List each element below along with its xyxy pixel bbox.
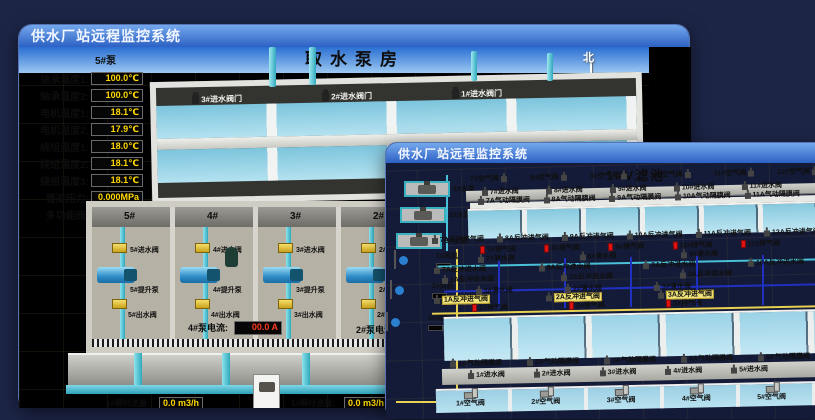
panel-row-value: 18.1℃: [91, 106, 143, 119]
inlet-valve-label: 1#进水阀: [476, 371, 505, 379]
inlet-valve[interactable]: 7#进水阀: [482, 188, 519, 196]
exhaust-valve-label: 2#排气阀: [576, 301, 605, 309]
clean-water-valve[interactable]: 9#清水阀: [681, 251, 718, 259]
inlet-valve-icon[interactable]: [361, 243, 376, 253]
alarm-valve-icon: [666, 299, 671, 307]
pump-icon[interactable]: [263, 267, 301, 283]
exhaust-valve[interactable]: 1#排气阀: [472, 303, 508, 312]
valve-icon: [565, 286, 571, 292]
backwash-water-valve[interactable]: 1A反冲进水阀: [442, 276, 494, 284]
inlet-valve[interactable]: 5#进水阀: [731, 366, 768, 374]
diaphragm-valve[interactable]: 2A气动隔膜阀: [527, 358, 579, 366]
valve-icon: [696, 231, 702, 237]
air-valve[interactable]: 7#空气阀: [470, 175, 507, 183]
exhaust-valve[interactable]: 10#排气阀: [672, 241, 712, 250]
inlet-valve-label: 3#进水阀: [296, 247, 325, 254]
intake-valve[interactable]: 1#进水阀门: [452, 89, 502, 99]
diaphragm-valve-label: 1A气动隔膜阀: [458, 360, 502, 368]
panel-row-label: 绕组温度1:: [29, 139, 89, 154]
inlet-valve-label: 3#进水阀: [608, 369, 637, 377]
panel-row-value: 18.0℃: [91, 140, 143, 153]
flow-readout-label: 1#瞬时流量:: [291, 400, 335, 408]
bay-number: 2#: [373, 212, 384, 222]
alarm-valve-icon: [472, 304, 477, 312]
exhaust-valve[interactable]: 2#排气阀: [569, 301, 605, 310]
backwash-air-valve-label: 11A反冲进气阀: [703, 230, 751, 238]
operator-figure: [225, 247, 238, 267]
valve-icon: [675, 194, 681, 200]
pump5-panel-title: 5#泵: [95, 57, 116, 67]
panel-row-label: 绕组温度2:: [29, 156, 89, 171]
air-valve-label: 10#空气阀: [650, 171, 683, 179]
inlet-valve[interactable]: 8#进水阀: [546, 187, 583, 195]
flow-readout-label: 1#瞬时流量:: [106, 400, 150, 408]
app-title: 供水厂站远程监控系统: [31, 26, 181, 46]
inlet-valve-label: 5#进水阀: [130, 247, 159, 254]
pump-icon[interactable]: [97, 267, 135, 283]
blower-label: 2#风机: [432, 283, 454, 290]
pipe-pillar: [547, 53, 553, 81]
air-valve[interactable]: 12#空气阀: [777, 168, 815, 176]
backwash-air-valve-label: 8A反冲进气阀: [505, 234, 549, 242]
bay-number: 3#: [290, 212, 301, 222]
air-valve-label: 4#空气阀: [682, 395, 711, 403]
backwash-water-valve[interactable]: 8A反冲进水阀: [539, 263, 591, 271]
backwash-air-valve-label: 12A反冲进气阀: [772, 228, 815, 236]
valve-icon: [497, 236, 503, 242]
diaphragm-valve[interactable]: 7A气动隔膜阀: [478, 197, 530, 205]
diaphragm-valve[interactable]: 1A气动隔膜阀: [450, 360, 502, 368]
alarm-valve-icon: [741, 240, 746, 248]
filter-pool-scene: 1#V滤池 1#水泵 2#水泵 3#水泵: [386, 163, 815, 419]
filter-pool-window: 供水厂站远程监控系统 1#V滤池 1#水泵 2#水泵 3#水泵: [385, 142, 815, 418]
diaphragm-valve[interactable]: 4A气动隔膜阀: [681, 355, 733, 363]
panel-row: 绕组温度2: 18.1℃: [29, 156, 143, 171]
backwash-water-valve-label: 8A反冲进水阀: [547, 263, 591, 271]
blower-label: 1#风机: [436, 253, 458, 260]
valve-icon: [527, 360, 533, 366]
titlebar[interactable]: 供水厂站远程监控系统: [19, 25, 689, 47]
valve-icon: [482, 189, 488, 195]
backwash-water-valve-label: 1A反冲进水阀: [450, 276, 494, 284]
vertical-pipe: [222, 353, 230, 387]
backwash-air-valve-label: 10A反冲进气阀: [635, 231, 683, 239]
valve-icon: [621, 173, 627, 179]
inlet-valve-label: 7#进水阀: [490, 188, 519, 196]
air-valve-label: 1#空气阀: [456, 400, 485, 408]
blower-icon: [386, 312, 388, 331]
valve-icon: [322, 92, 329, 101]
inlet-valve-label: 8#进水阀: [554, 187, 583, 195]
backwash-water-valve-label: 3A反冲进水阀: [688, 270, 732, 278]
building-front: [68, 353, 430, 385]
backwash-water-valve-label: 7A反冲进水阀: [442, 266, 486, 274]
air-valve[interactable]: 2#空气阀: [531, 390, 560, 406]
valve-icon: [476, 288, 482, 294]
valve-icon: [544, 197, 550, 203]
diaphragm-valve-label: 9A气动隔膜阀: [617, 194, 661, 202]
exhaust-valve-label: 1#排气阀: [479, 304, 508, 312]
valve-icon: [758, 355, 764, 361]
panel-row: 绕组温度3: 18.1℃: [29, 173, 143, 188]
valve-icon: [685, 171, 691, 177]
air-valve-label: 2#空气阀: [531, 398, 560, 406]
current-readout-value: 00.0 A: [234, 321, 282, 335]
panel-row-label: 绕组温度3:: [29, 173, 89, 188]
blower[interactable]: 1#风机: [394, 251, 396, 269]
inlet-valve-label: 2#进水阀: [542, 370, 571, 378]
outlet-valve-icon[interactable]: [361, 299, 376, 309]
alarm-valve-icon: [544, 244, 549, 252]
alarm-valve-icon: [672, 242, 677, 250]
elbow-valve-icon: [765, 386, 777, 393]
exhaust-valve[interactable]: 7#排气阀: [480, 245, 516, 254]
backwash-air-valve[interactable]: 11A反冲进气阀: [695, 230, 751, 238]
exhaust-valve-label: 11#排气阀: [748, 240, 780, 248]
elbow-valve-icon: [464, 392, 476, 399]
valve-icon: [432, 237, 438, 243]
clean-valve-label: 7#清水阀: [486, 255, 515, 263]
valve-icon: [192, 95, 199, 104]
clean-valve-label: 9#清水阀: [689, 251, 718, 259]
backwash-air-valve[interactable]: 8A反冲进气阀: [497, 234, 549, 242]
panel-row-label: 轴承温度1:: [29, 71, 89, 86]
valve-icon: [600, 370, 606, 376]
inlet-valve-icon[interactable]: [112, 243, 127, 253]
exhaust-valve-label: 3#排气阀: [673, 299, 702, 307]
panel-row-value: 17.9℃: [91, 123, 143, 136]
pump-tray: [400, 207, 446, 223]
intake-valve-label: 1#进水阀门: [461, 89, 502, 98]
blower-status-chip: [428, 325, 443, 331]
valve-icon: [434, 267, 440, 273]
backwash-air-valve-label: 9A反冲进气阀: [570, 233, 614, 241]
panel-row-value: 100.0℃: [91, 72, 143, 85]
bay-number: 5#: [124, 212, 135, 222]
valve-icon: [501, 176, 507, 182]
panel-row: 电机温度1: 18.1℃: [29, 105, 143, 120]
backwash-air-valve[interactable]: 10A反冲进气阀: [627, 231, 683, 239]
elbow-valve-icon: [690, 387, 702, 394]
air-valve-label: 7#空气阀: [470, 175, 499, 183]
valve-icon: [478, 198, 484, 204]
panel-row: 轴承温度2: 100.0℃: [29, 88, 143, 103]
main-outlet-pipe: [66, 385, 402, 394]
valve-icon: [561, 275, 567, 281]
intake-valve-label: 3#进水阀门: [201, 95, 242, 104]
panel-row: 电机温度2: 17.9℃: [29, 122, 143, 137]
diaphragm-valve-label: 4A气动隔膜阀: [689, 355, 733, 363]
pump-icon: [418, 185, 436, 194]
valve-icon: [643, 263, 649, 269]
inlet-valve-label: 5#进水阀: [739, 366, 768, 374]
alarm-valve-icon: [608, 243, 613, 251]
outlet-valve-label: 4#出水阀: [211, 312, 240, 319]
backwash-pump[interactable]: 1#水泵: [404, 181, 475, 197]
diaphragm-valve[interactable]: 9A气动隔膜阀: [609, 194, 661, 202]
pump-bay: 5# 5#进水阀 5#提升泵 5#出水阀: [92, 207, 175, 347]
air-valve[interactable]: 1#空气阀: [456, 392, 485, 408]
inlet-valve[interactable]: 9#进水阀: [610, 185, 647, 193]
panel-row-label: 管道压力:: [29, 190, 89, 205]
diaphragm-valve-label: 2A气动隔膜阀: [535, 358, 579, 366]
backwash-water-valve[interactable]: 10A反冲进水阀: [748, 259, 804, 267]
backwash-water-valve[interactable]: 3A反冲进水阀: [680, 270, 732, 278]
inlet-valve[interactable]: 2#进水阀: [534, 370, 571, 378]
bay-number: 4#: [207, 212, 218, 222]
diaphragm-valve[interactable]: 10A气动隔膜阀: [675, 192, 731, 200]
pump-label: 4#提升泵: [213, 287, 242, 294]
valve-icon: [609, 195, 615, 201]
exhaust-valve-label: 9#排气阀: [615, 243, 644, 251]
exhaust-valve[interactable]: 9#排气阀: [608, 242, 644, 251]
scene-title: 取水泵房: [305, 51, 405, 68]
pump-label: 5#提升泵: [130, 287, 159, 294]
vertical-pipe: [134, 353, 142, 387]
valve-icon: [744, 192, 750, 198]
air-valve[interactable]: 9#空气阀: [590, 172, 627, 180]
flow-meter-cabinet: [253, 374, 280, 408]
valve-icon: [748, 170, 754, 176]
pipe-pillar: [309, 47, 316, 85]
pump-icon[interactable]: [346, 267, 384, 283]
panel-row-label: 电机温度1:: [29, 105, 89, 120]
pump-tray: [404, 181, 450, 197]
valve-icon: [434, 297, 440, 303]
inlet-valve-label: 11#进水阀: [750, 182, 782, 190]
panel-row-label: 多功能阀:: [29, 207, 89, 222]
diaphragm-valve[interactable]: 8A气动隔膜阀: [544, 195, 596, 203]
inlet-valve[interactable]: 4#进水阀: [665, 367, 702, 375]
current-readout-label: 4#泵电流:: [188, 324, 228, 333]
exhaust-valve[interactable]: 3#排气阀: [666, 299, 702, 308]
outlet-valve-label: 3#出水阀: [294, 312, 323, 319]
flow-readout-value: 0.0 m3/h: [159, 397, 203, 408]
air-valve[interactable]: 11#空气阀: [714, 170, 754, 178]
backwash-air-valve[interactable]: 12A反冲进气阀: [764, 228, 815, 236]
app-title: 供水厂站远程监控系统: [398, 145, 528, 162]
clean-water-valve[interactable]: 7#清水阀: [478, 255, 515, 263]
inlet-valve[interactable]: 10#进水阀: [674, 184, 715, 192]
air-valve[interactable]: 5#空气阀: [757, 386, 786, 402]
backwash-water-valve[interactable]: 9A反冲进水阀: [643, 261, 695, 269]
valve-icon: [681, 356, 687, 362]
intake-valve[interactable]: 3#进水阀门: [192, 94, 242, 104]
clean-water-valve[interactable]: 8#清水阀: [579, 253, 616, 261]
pump-icon: [414, 211, 432, 220]
diaphragm-valve-label: 11A气动隔膜阀: [752, 191, 800, 199]
panel-row: 绕组温度1: 18.0℃: [29, 139, 143, 154]
diaphragm-valve-label: 3A气动隔膜阀: [612, 356, 656, 364]
clean-valve-label: 8#清水阀: [587, 253, 616, 261]
air-valve-label: 9#空气阀: [590, 173, 619, 181]
intake-valve[interactable]: 2#进水阀门: [322, 92, 372, 102]
valve-icon: [534, 371, 540, 377]
alarm-valve-icon: [569, 302, 574, 310]
valve-icon: [452, 90, 459, 99]
flow-readout-value: 0.0 m3/h: [344, 397, 388, 408]
valve-icon: [468, 373, 474, 379]
pump-icon: [410, 237, 428, 246]
outlet-valve-label: 5#出水阀: [128, 312, 157, 319]
exhaust-valve-label: 8#排气阀: [551, 244, 580, 252]
blower-icon: [394, 250, 396, 269]
panel-row: 轴承温度1: 100.0℃: [29, 71, 143, 86]
diaphragm-valve[interactable]: 3A气动隔膜阀: [604, 356, 656, 364]
inlet-valve[interactable]: 3#进水阀: [600, 369, 637, 377]
inlet-valve-label: 10#进水阀: [682, 184, 715, 192]
valve-icon: [450, 361, 456, 367]
air-valve-label: 3#空气阀: [607, 397, 636, 405]
panel-row-value: 18.1℃: [91, 157, 143, 170]
valve-icon: [478, 256, 484, 262]
backwash-air-valve-label: 7A反冲进气阀: [440, 236, 484, 244]
blower[interactable]: 3#风机: [386, 313, 388, 331]
outlet-valve-icon[interactable]: [112, 299, 127, 309]
backwash-air-valve[interactable]: 9A反冲进气阀: [562, 233, 614, 241]
valve-icon: [627, 233, 633, 239]
compass-north: 北: [583, 49, 594, 65]
backwash-water-valve-label: 2A反冲进水阀: [569, 273, 613, 281]
elbow-valve-icon: [540, 390, 552, 397]
titlebar[interactable]: 供水厂站远程监控系统: [386, 143, 815, 163]
backwash-pump[interactable]: 2#水泵: [400, 207, 471, 223]
air-valve[interactable]: 4#空气阀: [682, 387, 711, 403]
inlet-valve[interactable]: 1#进水阀: [468, 371, 505, 379]
blower[interactable]: 2#风机: [390, 281, 392, 299]
air-valve-label: 5#空气阀: [757, 394, 786, 402]
air-valve[interactable]: 3#空气阀: [606, 389, 635, 405]
inlet-valve-icon[interactable]: [195, 243, 210, 253]
diaphragm-valve-label: 5A气动隔膜阀: [766, 353, 810, 361]
air-valve-label: 12#空气阀: [777, 168, 810, 176]
valve-icon: [764, 230, 770, 236]
panel-row-label: 轴承温度2:: [29, 88, 89, 103]
valve-icon: [680, 272, 686, 278]
diaphragm-valve-label: 8A气动隔膜阀: [552, 195, 596, 203]
outlet-valve-icon[interactable]: [278, 299, 293, 309]
air-valve[interactable]: 8#空气阀: [530, 174, 567, 182]
valve-icon: [561, 174, 567, 180]
valve-icon: [658, 292, 664, 298]
inlet-valve-icon[interactable]: [278, 243, 293, 253]
exhaust-valve[interactable]: 8#排气阀: [544, 244, 580, 253]
inlet-valve-label: 4#进水阀: [673, 367, 702, 375]
valve-icon: [579, 254, 585, 260]
diaphragm-valve-label: 7A气动隔膜阀: [486, 197, 530, 205]
inlet-valve-label: 9#进水阀: [618, 185, 647, 193]
valve-icon: [748, 260, 754, 266]
diaphragm-valve[interactable]: 11A气动隔膜阀: [744, 191, 800, 199]
exhaust-valve-label: 7#排气阀: [487, 246, 516, 254]
valve-icon: [681, 252, 687, 258]
elbow-valve-icon: [615, 389, 627, 396]
air-valve-label: 11#空气阀: [714, 170, 746, 178]
air-valve[interactable]: 10#空气阀: [650, 171, 691, 179]
diaphragm-valve-label: 10A气动隔膜阀: [683, 192, 731, 200]
valve-icon: [546, 295, 552, 301]
air-valve-label: 8#空气阀: [530, 174, 559, 182]
pipe-pillar: [269, 47, 276, 87]
valve-icon: [442, 277, 448, 283]
panel-row-label: 电机温度2:: [29, 122, 89, 137]
backwash-water-valve[interactable]: 7A反冲进水阀: [434, 266, 486, 274]
valve-icon: [562, 234, 568, 240]
backwash-air-valve[interactable]: 7A反冲进气阀: [432, 236, 484, 244]
room-hatch-edge: [92, 339, 424, 347]
backwash-water-valve[interactable]: 2A反冲进水阀: [561, 273, 613, 281]
panel-row-value: 18.1℃: [91, 174, 143, 187]
pump-icon[interactable]: [180, 267, 218, 283]
outlet-valve-icon[interactable]: [195, 299, 210, 309]
diaphragm-valve[interactable]: 5A气动隔膜阀: [758, 353, 810, 361]
exhaust-valve[interactable]: 11#排气阀: [741, 239, 780, 248]
valve-icon: [731, 367, 737, 373]
blower-icon: [390, 280, 392, 299]
backwash-water-valve-label: 10A反冲进水阀: [756, 259, 804, 267]
backwash-water-valve-label: 9A反冲进水阀: [651, 261, 695, 269]
valve-icon: [604, 358, 610, 364]
valve-icon: [539, 265, 545, 271]
vertical-pipe: [302, 353, 310, 387]
panel-row-value: 100.0℃: [91, 89, 143, 102]
pipe-pillar: [471, 51, 477, 81]
intake-valve-label: 2#进水阀门: [331, 92, 372, 101]
pump-label: 3#提升泵: [296, 287, 325, 294]
valve-icon: [665, 368, 671, 374]
